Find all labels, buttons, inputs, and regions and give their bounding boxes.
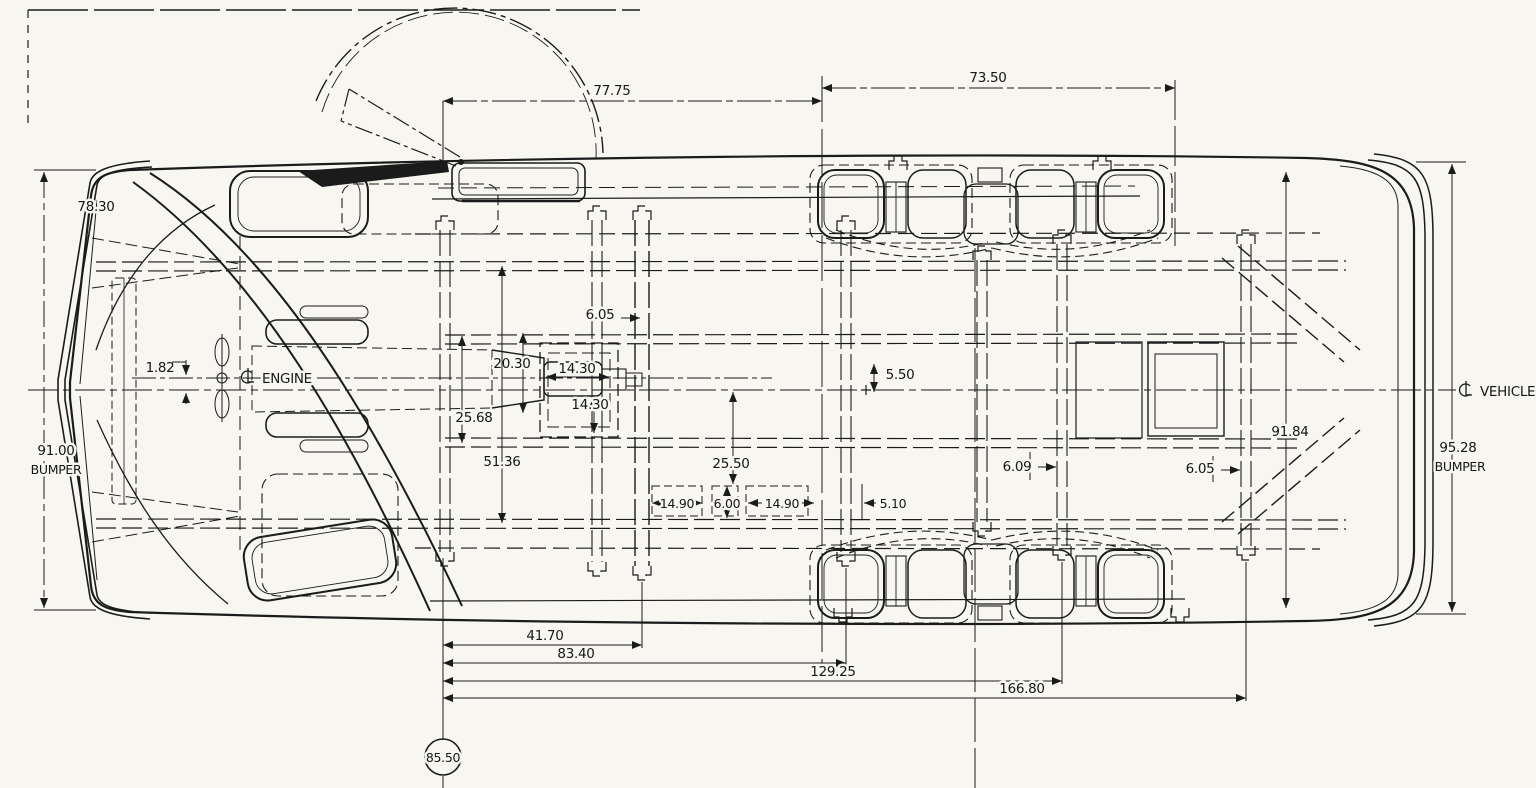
dim-frame-span: 51.36 [483, 454, 520, 470]
dim-axle-to-crossmember: 41.70 [526, 628, 563, 644]
dimensions: 77.75 73.50 78.30 91.00 BUMPER 1.82 ENGI… [31, 70, 1536, 698]
dim-front-bumper-width: 91.00 [37, 443, 74, 459]
valve-cover [266, 413, 368, 437]
dim-axle-to-rear-hanger: 129.25 [810, 664, 855, 680]
dim-rail-flange: 5.10 [880, 496, 907, 511]
chassis-plan-drawing: 77.75 73.50 78.30 91.00 BUMPER 1.82 ENGI… [0, 0, 1536, 788]
dim-crossmember-offset-mid: 6.09 [1003, 459, 1032, 475]
dim-engine-offset: 1.82 [146, 360, 175, 376]
dim-front-axle-station: 85.50 [426, 750, 461, 765]
dim-rear-body-width: 91.84 [1271, 424, 1308, 440]
door-swing-arc [316, 8, 603, 166]
dim-body-width: 78.30 [77, 199, 114, 215]
dim-upper-front-span: 77.75 [593, 83, 630, 99]
dim-sill-segment-left: 14.90 [660, 496, 695, 511]
dim-hump-length: 14.30 [571, 397, 608, 413]
dim-sill-gap: 6.00 [714, 496, 741, 511]
dim-crossmember-offset-front: 6.05 [586, 307, 615, 323]
engine-centerline-label: ENGINE [262, 371, 312, 387]
dim-rear-floor-offset: 5.50 [886, 367, 915, 383]
dim-axle-to-mid-frame: 83.40 [557, 646, 594, 662]
vehicle-centerline-label: VEHICLE [1480, 384, 1535, 400]
dim-sill-segment-right: 14.90 [765, 496, 800, 511]
windshield-cowl-lines [96, 173, 462, 611]
dim-hump-width: 14.30 [558, 361, 595, 377]
dim-frame-half-span: 25.68 [455, 410, 492, 426]
station-balloon: 85.50 [425, 739, 461, 775]
dim-axle-to-frame-end: 166.80 [999, 681, 1044, 697]
front-wheel-bottom [241, 474, 399, 603]
rear-bumper-word: BUMPER [1435, 459, 1486, 474]
door-hinge-pivot [458, 159, 464, 165]
dim-rear-bumper-width: 95.28 [1439, 440, 1476, 456]
sheet-border [28, 10, 640, 130]
vent-panel [452, 163, 585, 201]
engine [112, 278, 642, 504]
dim-upper-rear-span: 73.50 [969, 70, 1006, 86]
dim-floor-to-centerline: 25.50 [712, 456, 749, 472]
front-bumper-word: BUMPER [31, 462, 82, 477]
blueprint-sheet: 77.75 73.50 78.30 91.00 BUMPER 1.82 ENGI… [0, 0, 1536, 788]
dim-crossmember-offset-rear: 6.05 [1186, 461, 1215, 477]
crossmembers [436, 206, 1255, 580]
dim-frame-inner-width: 20.30 [493, 356, 530, 372]
